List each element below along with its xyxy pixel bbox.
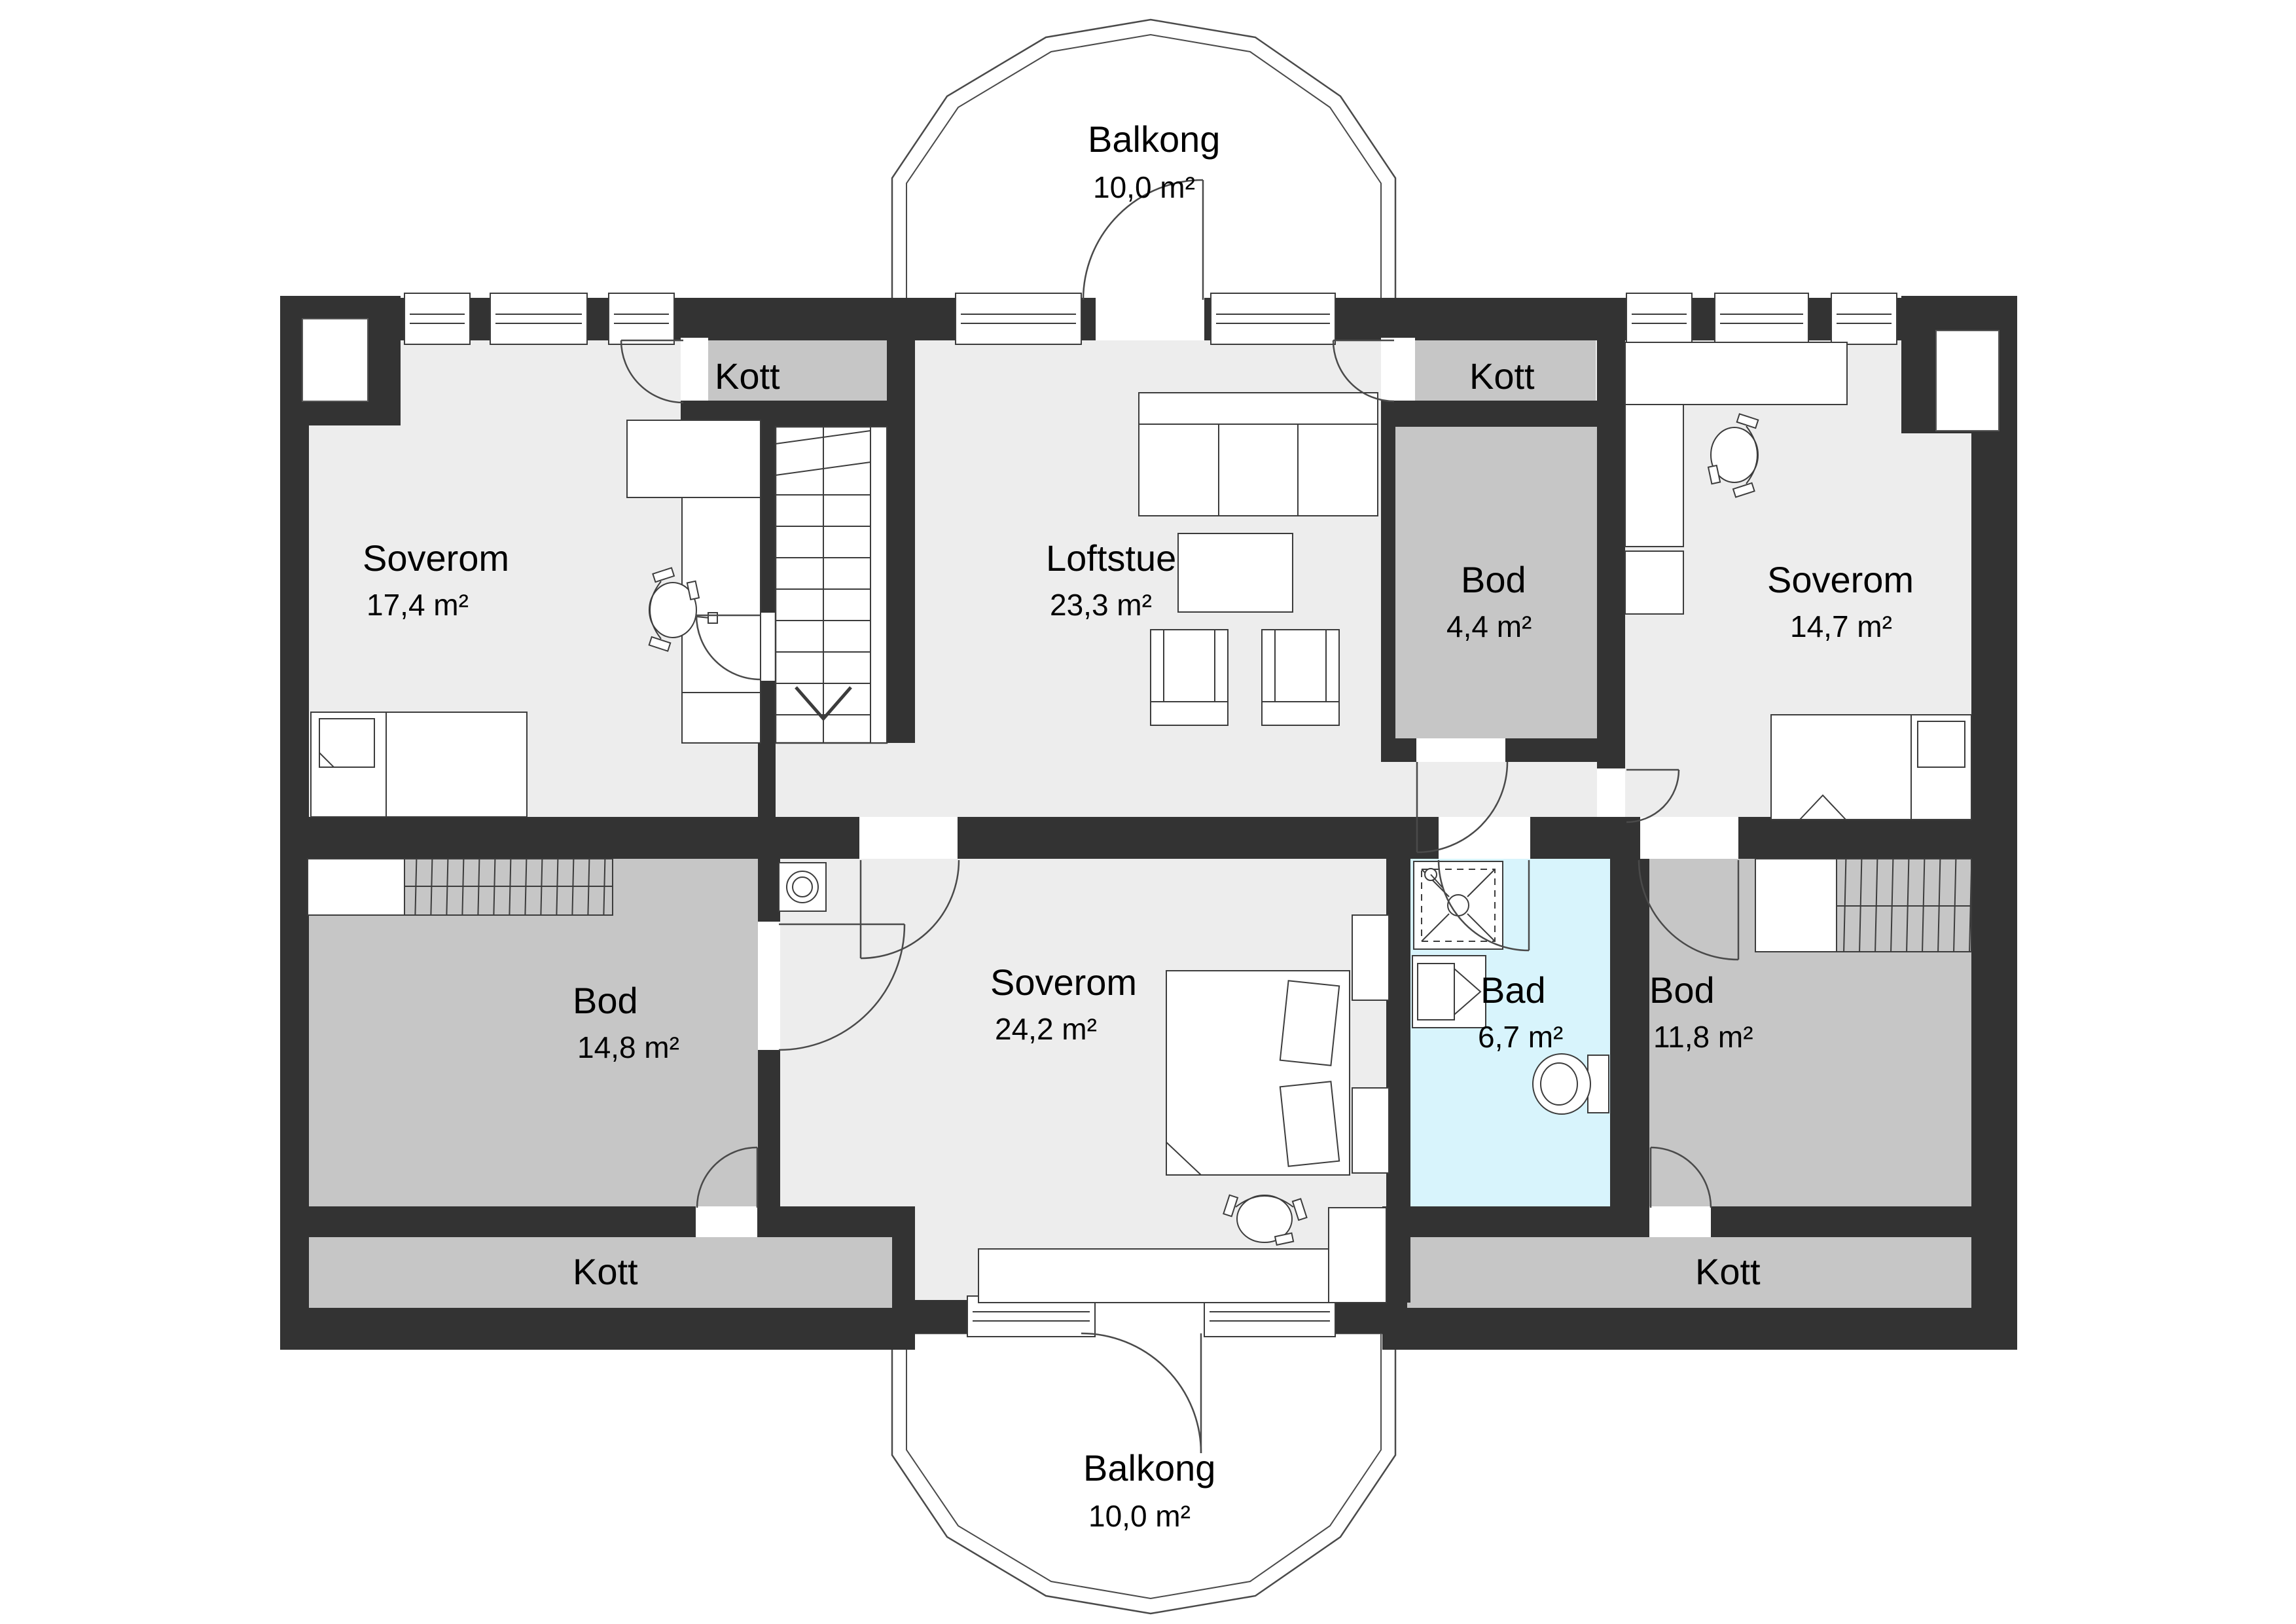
label-balkong-top-area: 10,0 m² (1093, 170, 1195, 204)
label-kott-se: Kott (1695, 1251, 1761, 1292)
label-bod-small: Bod (1461, 559, 1526, 600)
washing-machine-icon (779, 863, 826, 911)
label-soverom-nw-area: 17,4 m² (367, 588, 469, 622)
wardrobe-bod-sw (308, 859, 613, 915)
sofa (1139, 393, 1378, 516)
bed-soverom-nw (311, 712, 527, 817)
window (1211, 293, 1335, 344)
bed-soverom-ne (1771, 715, 1971, 820)
stairs (776, 427, 887, 743)
window (1831, 293, 1897, 344)
label-bad-area: 6,7 m² (1478, 1020, 1563, 1054)
label-loftstue: Loftstue (1046, 537, 1176, 579)
label-soverom-ne-area: 14,7 m² (1790, 609, 1892, 643)
label-soverom-nw: Soverom (363, 537, 509, 579)
armchair (1262, 630, 1339, 725)
label-bod-sw: Bod (573, 980, 638, 1021)
window (609, 293, 674, 344)
label-kott-sw: Kott (573, 1251, 638, 1292)
label-bod-sw-area: 14,8 m² (577, 1030, 679, 1064)
label-soverom-ne: Soverom (1767, 559, 1914, 600)
window (404, 293, 470, 344)
label-balkong-bottom-area: 10,0 m² (1088, 1499, 1191, 1533)
window (956, 293, 1081, 344)
shower-icon (1414, 861, 1503, 949)
balcony-top-outline (892, 20, 1395, 300)
label-bod-se-area: 11,8 m² (1653, 1020, 1753, 1054)
label-soverom-s: Soverom (990, 962, 1137, 1003)
sink-icon (1412, 956, 1486, 1028)
toilet-icon (1533, 1054, 1609, 1114)
shaft-ne (1936, 331, 1999, 431)
label-kott-nw: Kott (715, 355, 780, 397)
window (1715, 293, 1808, 344)
wardrobe-bod-se (1755, 859, 1971, 952)
window (1626, 293, 1692, 344)
window (490, 293, 587, 344)
label-bod-se: Bod (1649, 969, 1715, 1011)
label-kott-ne: Kott (1469, 355, 1535, 397)
shaft-nw (302, 319, 368, 401)
coffee-table (1178, 533, 1293, 612)
label-soverom-s-area: 24,2 m² (995, 1012, 1097, 1046)
floor-plan: Balkong 10,0 m² Soverom 17,4 m² Kott Lof… (0, 0, 2296, 1624)
label-balkong-bottom: Balkong (1083, 1447, 1215, 1489)
armchair (1151, 630, 1228, 725)
label-bad: Bad (1480, 969, 1546, 1011)
label-bod-small-area: 4,4 m² (1446, 609, 1532, 643)
label-loftstue-area: 23,3 m² (1050, 588, 1152, 622)
label-balkong-top: Balkong (1088, 118, 1220, 160)
